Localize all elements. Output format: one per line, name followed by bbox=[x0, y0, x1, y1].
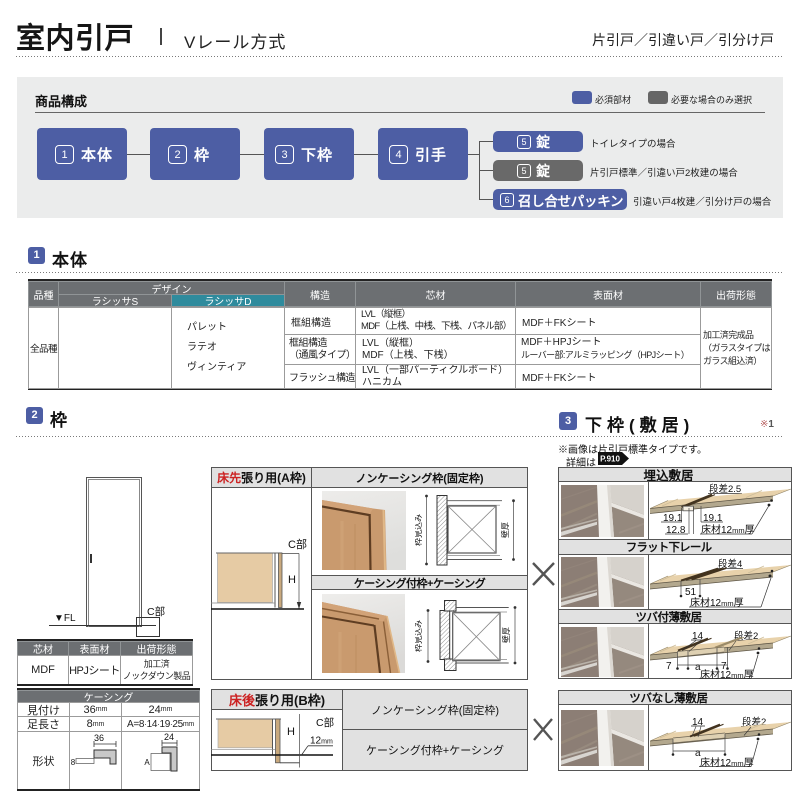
svg-text:枠見込み: 枠見込み bbox=[415, 514, 423, 546]
svg-text:8: 8 bbox=[71, 758, 76, 767]
svg-text:H: H bbox=[288, 574, 296, 586]
svg-text:7: 7 bbox=[666, 661, 672, 672]
svg-text:A: A bbox=[144, 758, 150, 767]
svg-text:36: 36 bbox=[94, 733, 104, 743]
svg-text:床材12mm厚: 床材12mm厚 bbox=[700, 668, 754, 679]
svg-text:床材12mm厚: 床材12mm厚 bbox=[700, 756, 754, 769]
svg-text:枠見込み: 枠見込み bbox=[415, 620, 423, 652]
svg-text:12mm: 12mm bbox=[310, 736, 333, 747]
svg-text:H: H bbox=[287, 726, 295, 738]
svg-text:壁厚: 壁厚 bbox=[501, 627, 511, 643]
svg-text:51: 51 bbox=[685, 587, 697, 598]
svg-text:C部: C部 bbox=[316, 716, 334, 729]
svg-text:P.910: P.910 bbox=[600, 455, 620, 464]
svg-text:24: 24 bbox=[164, 732, 174, 742]
svg-text:C部: C部 bbox=[288, 537, 307, 551]
svg-text:壁厚: 壁厚 bbox=[500, 522, 510, 538]
